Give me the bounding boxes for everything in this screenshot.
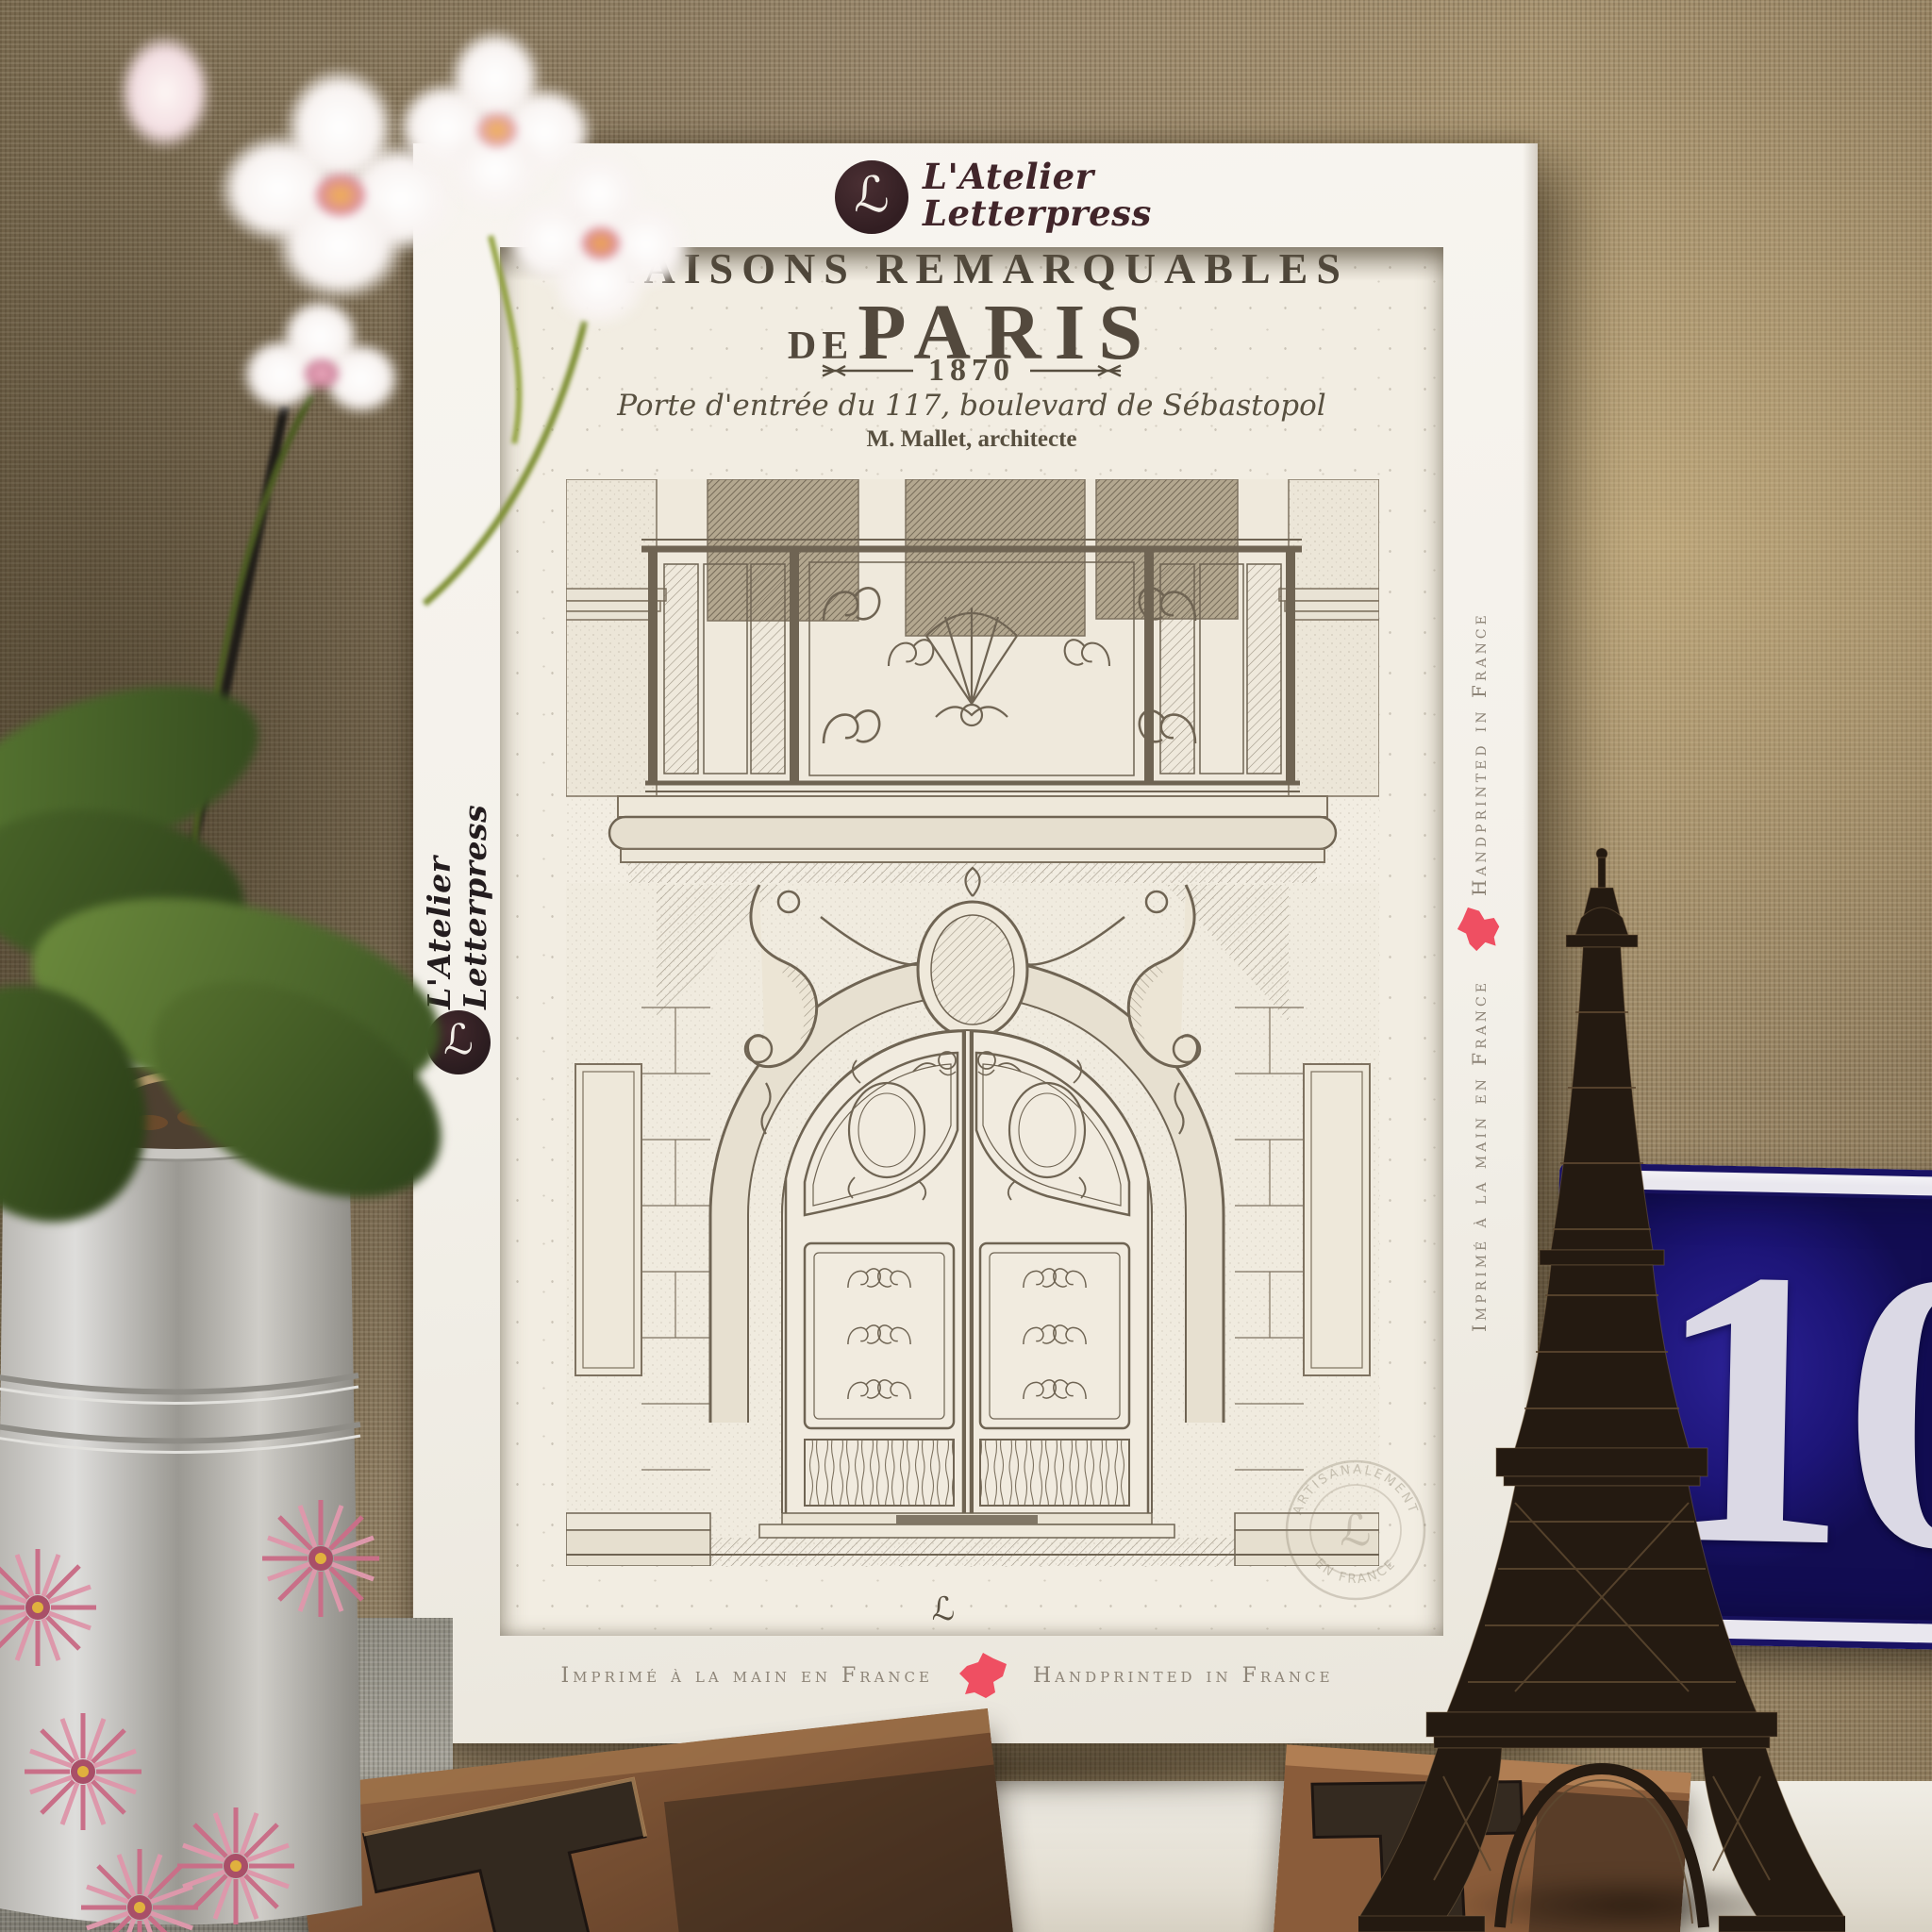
- orchid-bud: [104, 24, 226, 165]
- print-year: 1870: [928, 353, 1015, 389]
- eiffel-tower-figurine: [1358, 842, 1845, 1932]
- brand-wordmark-line1: L'Atelier: [923, 158, 1152, 195]
- print-monogram: ℒ: [868, 1591, 1019, 1628]
- monogram-letter: ℒ: [854, 171, 889, 220]
- brand-monogram-icon: ℒ: [835, 160, 908, 234]
- france-map-icon: [958, 1651, 1008, 1700]
- brand-wordmark: L'Atelier Letterpress: [923, 158, 1152, 232]
- arrow-ornament-icon: [1028, 363, 1123, 378]
- made-in-france-row: Imprimé à la main en France Handprinted …: [385, 1649, 1509, 1702]
- orchid-flower: [505, 146, 693, 335]
- brand-wordmark-line2: Letterpress: [923, 195, 1152, 232]
- photo-scene: ℒ L'Atelier Letterpress L'Atelier Letter…: [0, 0, 1932, 1932]
- made-in-france-en: Handprinted in France: [1033, 1664, 1334, 1688]
- made-in-france-fr: Imprimé à la main en France: [560, 1664, 933, 1688]
- orchid-flower: [241, 297, 401, 448]
- arrow-ornament-icon: [821, 363, 915, 378]
